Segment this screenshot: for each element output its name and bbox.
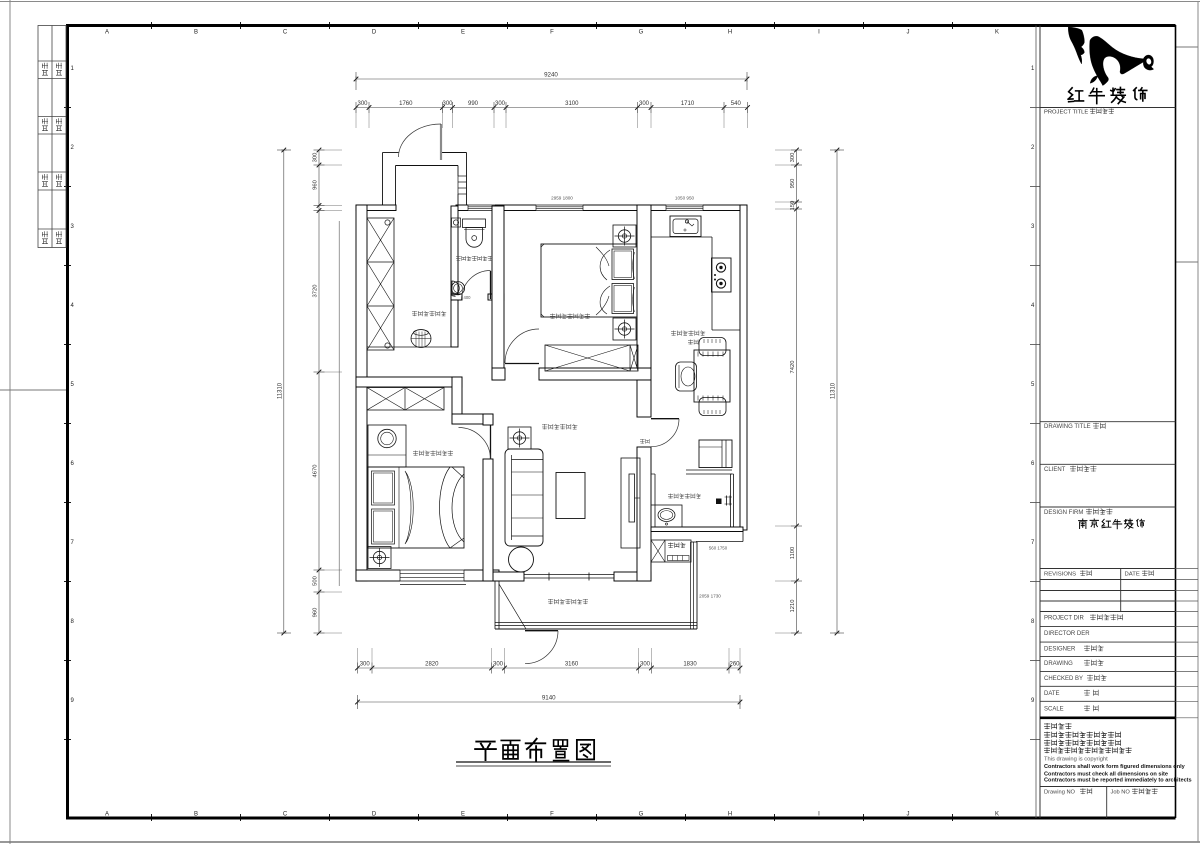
- svg-text:DESIGN FIRM: DESIGN FIRM: [1044, 510, 1083, 516]
- svg-text:300: 300: [790, 153, 796, 163]
- svg-text:Job NO: Job NO: [1111, 790, 1131, 796]
- svg-text:B: B: [194, 30, 198, 36]
- svg-text:300: 300: [493, 662, 504, 668]
- svg-text:F: F: [550, 812, 554, 818]
- svg-text:CHECKED BY: CHECKED BY: [1044, 676, 1083, 682]
- svg-text:990: 990: [468, 101, 479, 107]
- svg-text:400: 400: [464, 295, 472, 300]
- svg-text:540: 540: [731, 101, 742, 107]
- svg-text:2820: 2820: [425, 662, 439, 668]
- svg-text:C: C: [283, 812, 288, 818]
- svg-text:B: B: [194, 812, 198, 818]
- svg-text:560 1750: 560 1750: [709, 546, 728, 551]
- svg-text:300: 300: [360, 662, 371, 668]
- svg-text:DRAWING TITLE: DRAWING TITLE: [1044, 424, 1091, 430]
- svg-text:9140: 9140: [542, 695, 556, 702]
- svg-text:C: C: [283, 30, 288, 36]
- svg-text:1050 950: 1050 950: [675, 196, 695, 201]
- svg-text:A: A: [105, 30, 109, 36]
- svg-text:H: H: [728, 30, 732, 36]
- svg-text:2959 1800: 2959 1800: [551, 196, 573, 201]
- svg-text:260: 260: [729, 662, 740, 668]
- svg-text:Drawing NO: Drawing NO: [1044, 790, 1076, 796]
- svg-text:REVISIONS: REVISIONS: [1044, 572, 1076, 578]
- svg-text:300: 300: [313, 153, 319, 163]
- svg-text:D: D: [372, 812, 377, 818]
- svg-text:E: E: [461, 812, 465, 818]
- svg-text:DRAWING: DRAWING: [1044, 661, 1073, 667]
- svg-text:11310: 11310: [278, 382, 284, 399]
- svg-text:150: 150: [790, 201, 796, 211]
- svg-text:4670: 4670: [313, 465, 319, 478]
- svg-text:DATE: DATE: [1125, 572, 1140, 578]
- svg-text:1100: 1100: [790, 547, 796, 559]
- svg-text:11310: 11310: [831, 382, 837, 399]
- svg-text:DATE: DATE: [1044, 691, 1060, 697]
- svg-text:1830: 1830: [683, 662, 697, 668]
- svg-text:3160: 3160: [565, 662, 579, 668]
- svg-text:Contractors must check all dim: Contractors must check all dimensions on…: [1044, 771, 1168, 777]
- svg-text:DESIGNER: DESIGNER: [1044, 647, 1076, 653]
- svg-text:Contractors shall work form fi: Contractors shall work form figured dime…: [1044, 764, 1186, 770]
- svg-text:E: E: [461, 30, 465, 36]
- svg-text:K: K: [995, 812, 999, 818]
- svg-text:960: 960: [313, 180, 319, 190]
- svg-text:300: 300: [357, 101, 368, 107]
- svg-text:SCALE: SCALE: [1044, 707, 1064, 713]
- svg-text:DIRECTOR DER: DIRECTOR DER: [1044, 631, 1090, 637]
- svg-text:950: 950: [790, 179, 796, 189]
- svg-text:1210: 1210: [790, 600, 796, 613]
- svg-text:7420: 7420: [790, 361, 796, 374]
- svg-text:3720: 3720: [313, 285, 319, 298]
- svg-text:G: G: [639, 812, 644, 818]
- svg-text:960: 960: [313, 608, 319, 618]
- svg-text:3100: 3100: [565, 101, 579, 107]
- svg-text:G: G: [639, 30, 644, 36]
- svg-text:2059 1730: 2059 1730: [699, 594, 721, 599]
- svg-text:H: H: [728, 812, 732, 818]
- svg-text:PROJECT TITLE: PROJECT TITLE: [1044, 110, 1088, 116]
- svg-text:PROJECT DIR: PROJECT DIR: [1044, 616, 1085, 622]
- svg-text:300: 300: [442, 101, 453, 107]
- svg-text:J: J: [907, 30, 910, 36]
- svg-text:J: J: [907, 812, 910, 818]
- svg-text:1710: 1710: [681, 101, 695, 107]
- svg-text:K: K: [995, 30, 999, 36]
- svg-text:300: 300: [639, 101, 650, 107]
- svg-text:300: 300: [495, 101, 506, 107]
- svg-text:D: D: [372, 30, 377, 36]
- svg-text:A: A: [105, 812, 109, 818]
- svg-text:1760: 1760: [399, 101, 413, 107]
- svg-text:This drawing is copyright: This drawing is copyright: [1044, 756, 1108, 762]
- svg-text:Contractors must be reported i: Contractors must be reported immediately…: [1044, 778, 1192, 784]
- svg-text:CLIENT: CLIENT: [1044, 467, 1066, 473]
- svg-text:9240: 9240: [544, 72, 558, 79]
- svg-text:300: 300: [640, 662, 651, 668]
- svg-text:F: F: [550, 30, 554, 36]
- svg-text:500: 500: [313, 576, 319, 586]
